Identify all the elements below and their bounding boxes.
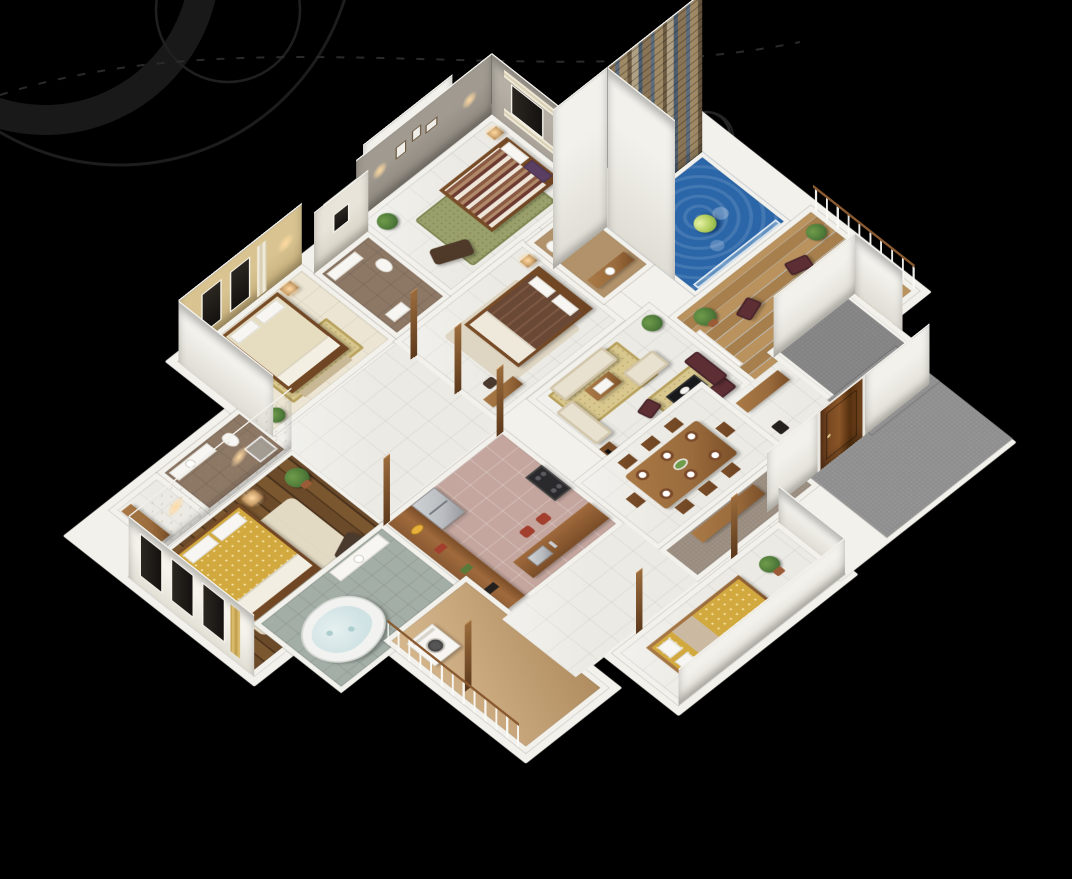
wall-sconce-glow	[372, 158, 387, 183]
daybed-pillow	[657, 638, 683, 658]
window	[140, 532, 163, 593]
pergola-post	[383, 453, 390, 526]
bath-tub-small	[385, 301, 411, 321]
master-pillow	[182, 534, 219, 563]
master-nightstand	[241, 489, 263, 507]
pergola-post	[731, 492, 738, 559]
curtain-gold	[231, 604, 241, 658]
picture-frame	[395, 139, 406, 160]
plant-icon	[689, 303, 722, 329]
jacuzzi-tub	[284, 583, 402, 676]
jacuzzi-jet	[325, 629, 335, 636]
plant-icon	[372, 209, 402, 233]
decor-vase	[771, 419, 790, 434]
plant-icon	[755, 552, 785, 576]
window	[171, 557, 194, 618]
toilet	[372, 256, 396, 275]
plate	[682, 428, 701, 443]
floor-plan-world	[0, 7, 1072, 879]
render-stage	[0, 0, 1072, 825]
basin	[351, 553, 366, 565]
picture-frame	[425, 115, 437, 133]
window	[230, 256, 250, 313]
wall-sconce-glow	[167, 492, 185, 522]
pergola-post	[497, 363, 504, 436]
plant-pot	[772, 565, 786, 576]
wall-sconce-glow	[277, 229, 293, 257]
window	[202, 581, 225, 642]
deck-chair	[735, 296, 762, 320]
curtain	[257, 239, 267, 297]
picture-frame	[412, 123, 422, 142]
pool-ball	[689, 210, 722, 236]
wall-sconce-glow	[462, 87, 477, 112]
pergola-post	[455, 322, 462, 395]
jacuzzi-jet	[347, 625, 357, 632]
pergola-post	[410, 287, 417, 360]
pergola-post	[636, 567, 643, 634]
wall-sconce-glow	[231, 441, 249, 471]
window	[333, 202, 349, 233]
